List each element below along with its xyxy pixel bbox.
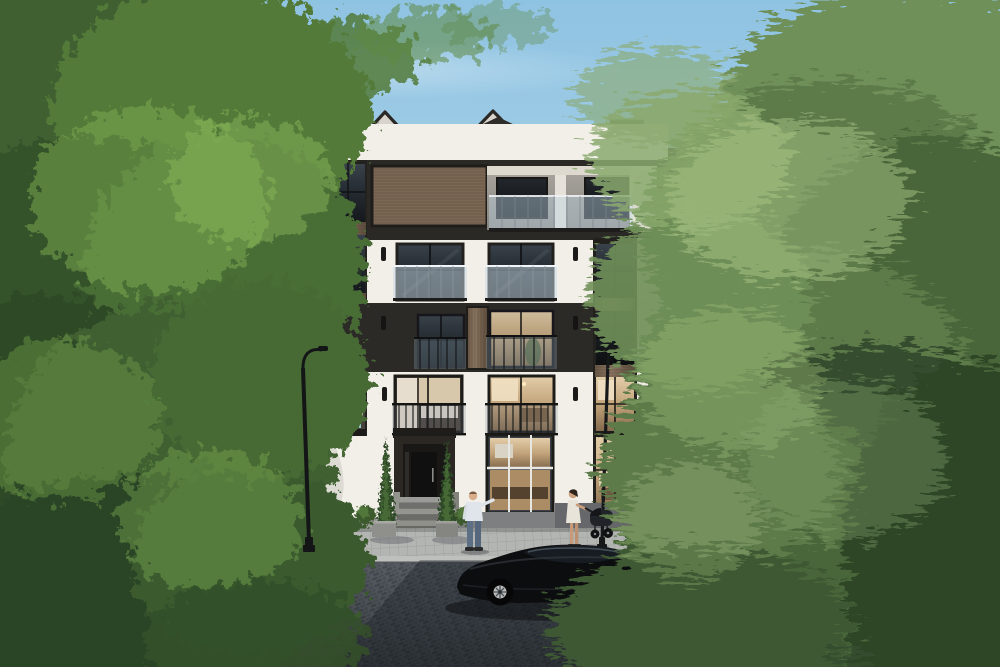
lit-window-balcony [485, 376, 558, 435]
wall-sconce [573, 387, 578, 401]
wall-sconce [573, 316, 578, 330]
shoe [474, 547, 483, 551]
wall-sconce [381, 316, 386, 330]
entrance-sidelight [405, 452, 409, 500]
window-with-balconette [393, 244, 467, 301]
lit-window-balcony [392, 376, 466, 435]
car-wheel-front [487, 579, 514, 606]
architectural-render [0, 0, 1000, 667]
window-with-railing [414, 315, 468, 369]
conifer-canopy [550, 0, 1000, 667]
jeans [475, 521, 481, 547]
wood-panel [372, 166, 487, 226]
arm [464, 506, 466, 518]
planter-rim [372, 521, 396, 524]
planter-rim [436, 521, 458, 524]
conifer-tree-right [550, 0, 1000, 667]
wheel-hub [607, 532, 610, 535]
wall-sconce [382, 387, 387, 401]
counter [492, 487, 548, 499]
planter-shadow [432, 536, 472, 544]
wood-strip [467, 307, 488, 369]
shoe [465, 547, 474, 551]
planter-shadow [370, 536, 414, 544]
scene-render [0, 0, 1000, 667]
leg [575, 523, 578, 544]
window-with-balconette [485, 244, 557, 301]
leg [570, 523, 573, 544]
ground-window-tall [487, 435, 553, 513]
window-with-railing [486, 311, 557, 369]
wall-art [495, 444, 513, 458]
wall-sconce [573, 247, 578, 261]
wheel-hub [594, 533, 596, 535]
door-handle [432, 468, 434, 482]
pendant-light [522, 382, 526, 386]
jeans [467, 521, 473, 547]
wall-sconce [381, 247, 386, 261]
